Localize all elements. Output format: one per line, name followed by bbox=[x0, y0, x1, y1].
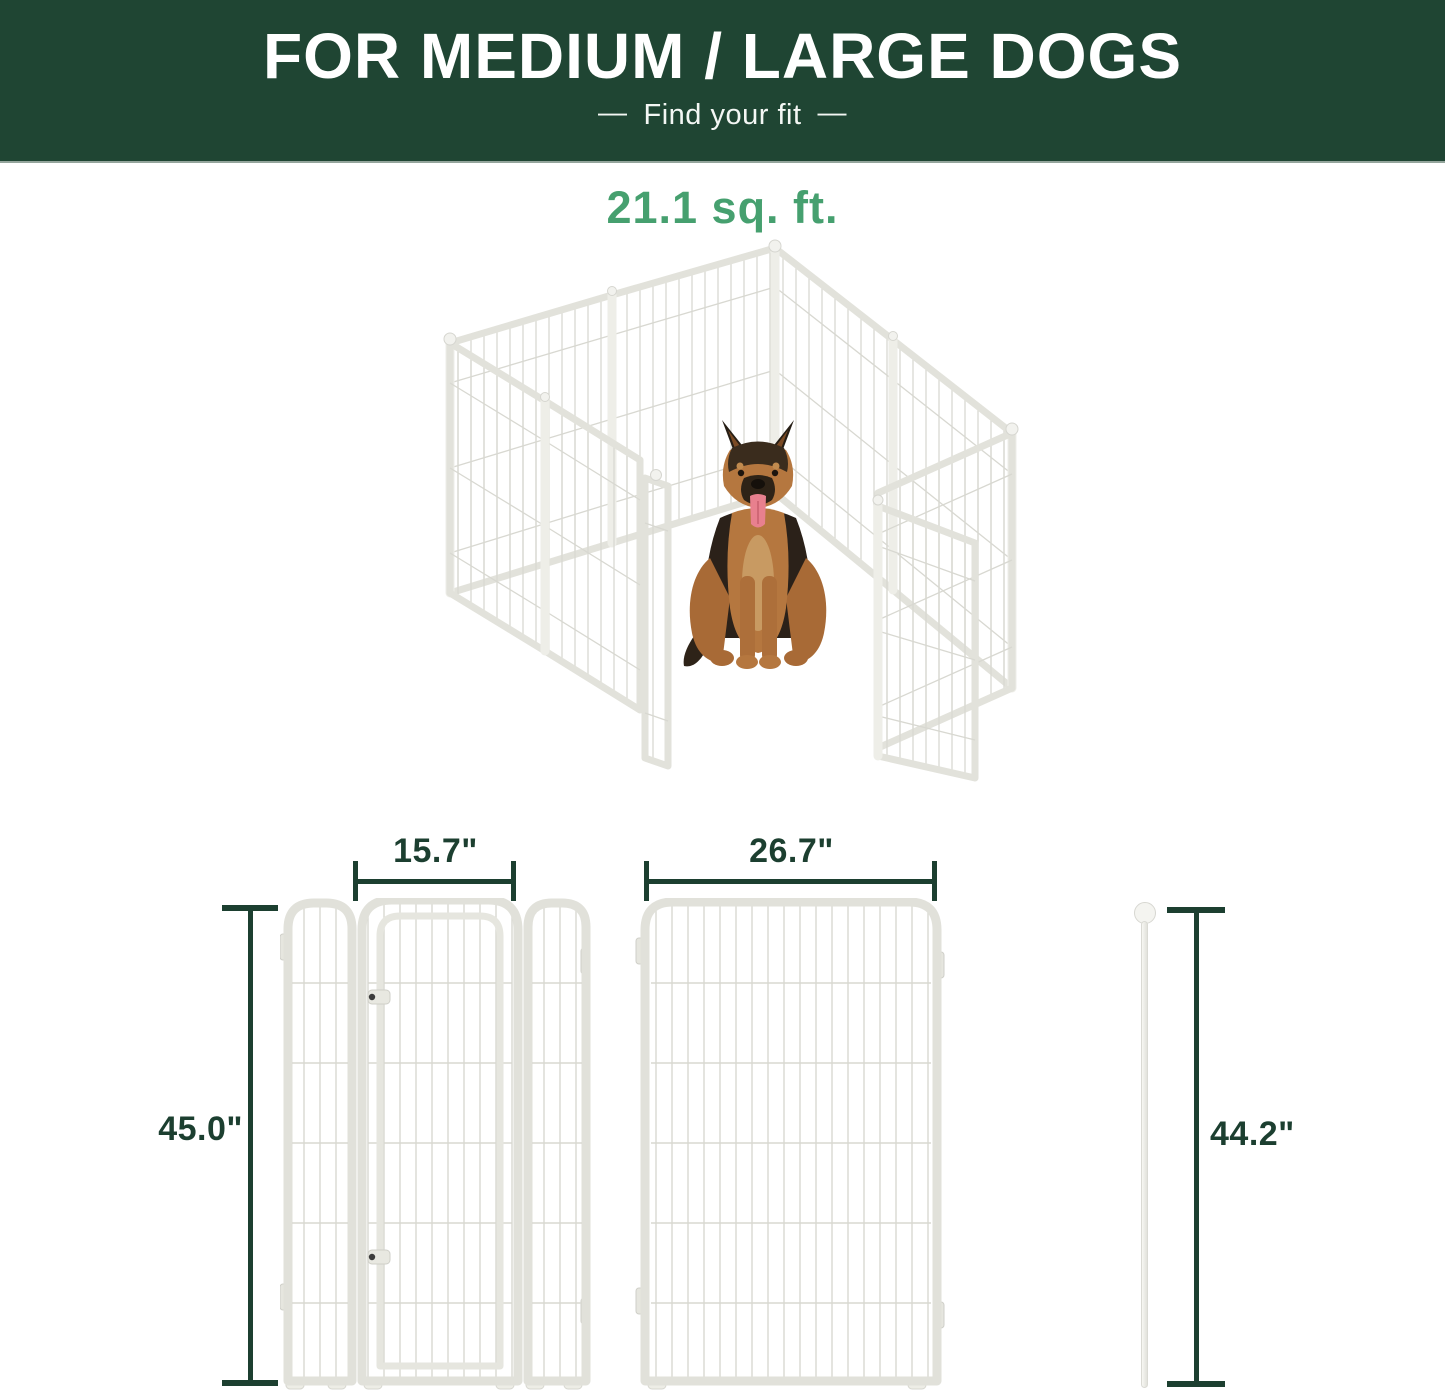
dim-line-rod-height bbox=[1194, 910, 1199, 1384]
door-latch-post bbox=[645, 478, 668, 766]
product-infographic: FOR MEDIUM / LARGE DOGS —Find your fit— … bbox=[0, 0, 1445, 1391]
dim-cap bbox=[1167, 907, 1225, 913]
dim-cap bbox=[222, 905, 278, 911]
large-panel bbox=[645, 902, 937, 1381]
dash-right: — bbox=[818, 97, 848, 130]
door-panel bbox=[362, 900, 518, 1381]
playpen-illustration bbox=[400, 238, 1060, 838]
dim-label-door-width: 15.7" bbox=[355, 832, 516, 871]
header-banner: FOR MEDIUM / LARGE DOGS —Find your fit— bbox=[0, 0, 1445, 163]
area-label: 21.1 sq. ft. bbox=[0, 182, 1445, 234]
dim-cap bbox=[1167, 1381, 1225, 1387]
dim-label-panel-width: 26.7" bbox=[646, 832, 937, 871]
open-door-panel bbox=[878, 506, 975, 778]
dim-line-panel-width bbox=[646, 879, 937, 884]
door-latch-bottom bbox=[369, 1254, 375, 1260]
dim-cap bbox=[222, 1380, 278, 1386]
dim-label-panel-height: 45.0" bbox=[103, 1110, 243, 1149]
dim-line-door-width bbox=[355, 879, 516, 884]
subtitle-text: Find your fit bbox=[644, 99, 802, 131]
narrow-panel-right bbox=[528, 903, 586, 1381]
dim-label-rod-height: 44.2" bbox=[1210, 1115, 1295, 1154]
door-latch-top bbox=[369, 994, 375, 1000]
page-title: FOR MEDIUM / LARGE DOGS bbox=[0, 0, 1445, 88]
narrow-panel-left bbox=[288, 903, 352, 1381]
ground-rod bbox=[1141, 921, 1148, 1388]
header-subtitle: —Find your fit— bbox=[0, 99, 1445, 132]
dim-line-panel-height bbox=[248, 908, 253, 1383]
panel-front-views bbox=[280, 898, 960, 1391]
dash-left: — bbox=[598, 97, 628, 130]
